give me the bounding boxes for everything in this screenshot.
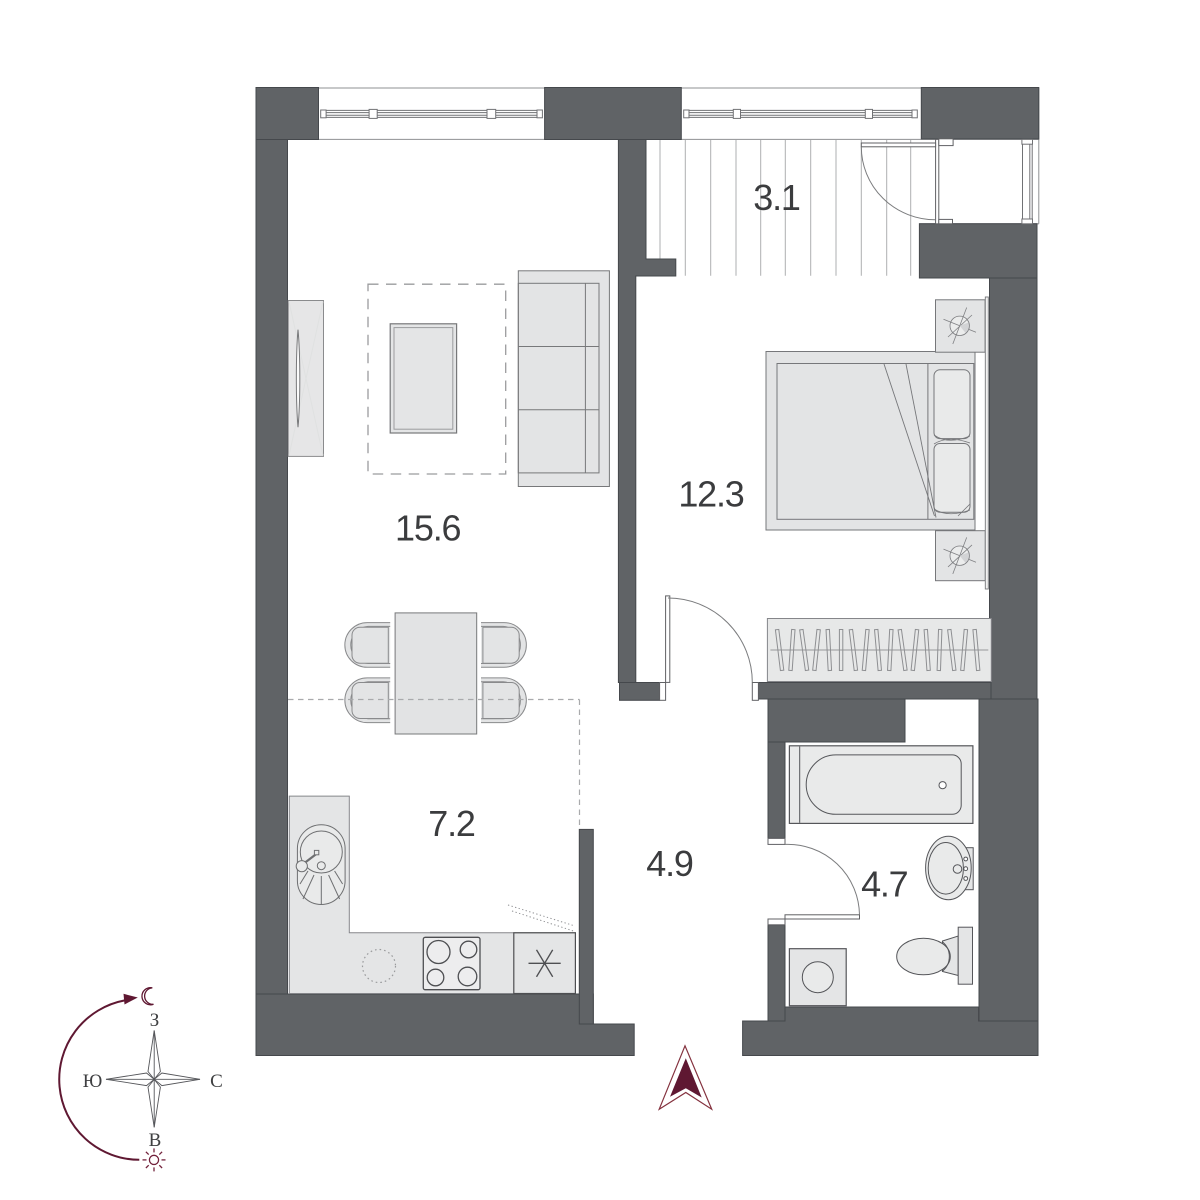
svg-text:В: В (149, 1130, 162, 1151)
svg-text:7.2: 7.2 (428, 803, 475, 844)
svg-text:12.3: 12.3 (678, 473, 743, 514)
svg-text:С: С (210, 1071, 223, 1092)
svg-text:15.6: 15.6 (395, 507, 460, 548)
svg-text:3.1: 3.1 (753, 177, 800, 218)
svg-text:4.9: 4.9 (646, 843, 693, 884)
svg-text:4.7: 4.7 (861, 863, 908, 904)
svg-text:З: З (150, 1010, 160, 1031)
svg-text:Ю: Ю (83, 1071, 103, 1092)
